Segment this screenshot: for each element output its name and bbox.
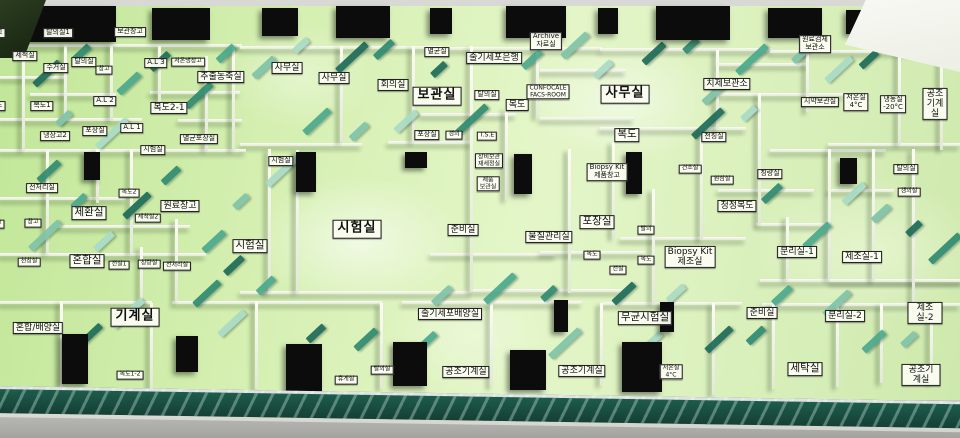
room-label: T.S.E xyxy=(477,132,497,141)
room-label: 무균시험실 xyxy=(618,311,672,325)
room-label: 공조기계실 xyxy=(558,365,605,377)
room-label: 분리실-1 xyxy=(777,246,817,258)
room-label: 공조기계실 xyxy=(902,364,941,386)
room-label: Archive 자료실 xyxy=(530,32,562,50)
room-label: 탈의실1 xyxy=(43,28,73,38)
room-label: 탈의 xyxy=(637,226,654,235)
room-label: 복도2 xyxy=(119,189,140,198)
room-label: 멸균실 xyxy=(424,47,449,57)
room-label: A.L 2 xyxy=(93,96,116,106)
room-label: 공조기계실 xyxy=(442,366,489,378)
room-label: 사무실 xyxy=(601,85,650,104)
room-label: 보관창고 xyxy=(114,27,146,37)
room-label: 분리실-2 xyxy=(825,310,865,322)
room-label: 세척실2 xyxy=(135,214,161,223)
room-label: 사무실 xyxy=(272,62,303,74)
room-label: 냉장고2 xyxy=(40,131,70,141)
room-label: 제환실 xyxy=(72,206,107,220)
room-label: 복도 xyxy=(637,256,654,265)
room-label: 복도 xyxy=(614,128,639,142)
room-label: 줄기세포배양실 xyxy=(418,308,482,320)
room-label: A.L 1 xyxy=(120,123,143,133)
room-label: 포장실 xyxy=(580,215,615,229)
room-label: 전실1 xyxy=(109,261,130,270)
room-label: Biopsy Kit 제품창고 xyxy=(587,163,628,181)
room-label: 건조실 xyxy=(679,165,702,174)
room-label: 포장실 xyxy=(82,126,107,136)
room-label: A.L 3 xyxy=(144,58,167,68)
room-label: 복도 xyxy=(506,99,529,111)
room-label: 휴게실 xyxy=(335,376,358,385)
room-label: 기계실 xyxy=(111,308,160,327)
room-label: 장비보관 재세정실 xyxy=(475,153,503,168)
room-label: 사무실 xyxy=(319,72,350,84)
room-label: 공조기계실 xyxy=(923,88,948,120)
room-label: 천칭실 xyxy=(701,132,726,142)
room-label: 탈의실 xyxy=(893,164,918,174)
room-label: 물질관리실 xyxy=(525,231,572,243)
room-label: 제품 보관실 xyxy=(477,176,500,191)
room-label: 칭량실 xyxy=(138,260,161,269)
floor-plan-model-photo: 탈의실1보관창고창고세척실수거실탈의실창고A.L 3저온냉장고추출농축실복도1복… xyxy=(0,0,960,438)
room-label: 준비실 xyxy=(448,224,479,236)
room-label: 원심실 xyxy=(711,176,734,185)
room-label: 탈의실 xyxy=(474,90,499,100)
room-label: 청정복도 xyxy=(717,200,756,212)
room-label: 갱의실 xyxy=(898,188,921,197)
room-label: 원료창고 xyxy=(160,200,199,212)
room-label: 줄기세포은행 xyxy=(466,52,522,64)
room-label: 전실 xyxy=(609,266,626,275)
room-label: 탈의실 xyxy=(371,366,394,375)
room-label: CONFOCALE FACS-ROOM xyxy=(526,84,569,99)
room-label: 포장실 xyxy=(414,130,439,140)
room-label: 칭량실 xyxy=(757,169,782,179)
room-label: 창고 xyxy=(0,220,5,229)
room-label: 저온실 4°C xyxy=(660,364,683,379)
room-label: 전처리실 xyxy=(163,262,191,271)
room-label: 저온실 4°C xyxy=(843,93,868,111)
room-label: 시험실 xyxy=(140,145,165,155)
room-label: 복도2-1 xyxy=(150,102,187,114)
room-label: 창고 xyxy=(0,28,5,38)
room-label: 시험실 xyxy=(268,156,293,166)
room-label: 복도 xyxy=(0,101,5,111)
room-label: 시험실 xyxy=(333,220,382,239)
room-label: Biopsy Kit 제조실 xyxy=(665,246,716,268)
room-label: 추출농축실 xyxy=(197,71,244,83)
room-label: 전처리실 xyxy=(26,183,58,193)
room-label: 시험실 xyxy=(233,239,268,253)
room-label: 시약보관실 xyxy=(801,97,839,107)
room-label: 제조실-1 xyxy=(842,251,882,263)
room-label: 원료검체 보관소 xyxy=(799,35,831,53)
room-label: 혼합실 xyxy=(70,254,105,268)
room-label: 멸균포장실 xyxy=(180,134,218,144)
room-label: 창고 xyxy=(95,66,112,75)
room-label: 복도1-2 xyxy=(117,371,144,380)
room-label: 보관실 xyxy=(413,87,462,106)
room-label: 준비실 xyxy=(747,307,778,319)
room-label: 창고 xyxy=(24,219,41,228)
room-label: 세척실 xyxy=(12,51,37,61)
room-label: 수거실 xyxy=(43,63,68,73)
room-label: 복도1 xyxy=(30,101,53,111)
room-label: 탈의실 xyxy=(71,57,96,67)
room-label: 갱의 xyxy=(445,131,462,140)
room-labels-layer: 탈의실1보관창고창고세척실수거실탈의실창고A.L 3저온냉장고추출농축실복도1복… xyxy=(0,0,960,438)
room-label: 냉동실 -20°C xyxy=(880,95,906,113)
room-label: 혼합/배양실 xyxy=(13,322,63,334)
room-label: 저온냉장고 xyxy=(171,58,205,67)
room-label: 세탁실 xyxy=(788,362,823,376)
room-label: 회의실 xyxy=(378,79,409,91)
room-label: 천칭실 xyxy=(18,258,41,267)
room-label: 제조실-2 xyxy=(908,302,943,324)
room-label: 치제보관소 xyxy=(703,78,750,90)
room-label: 복도 xyxy=(583,251,600,260)
